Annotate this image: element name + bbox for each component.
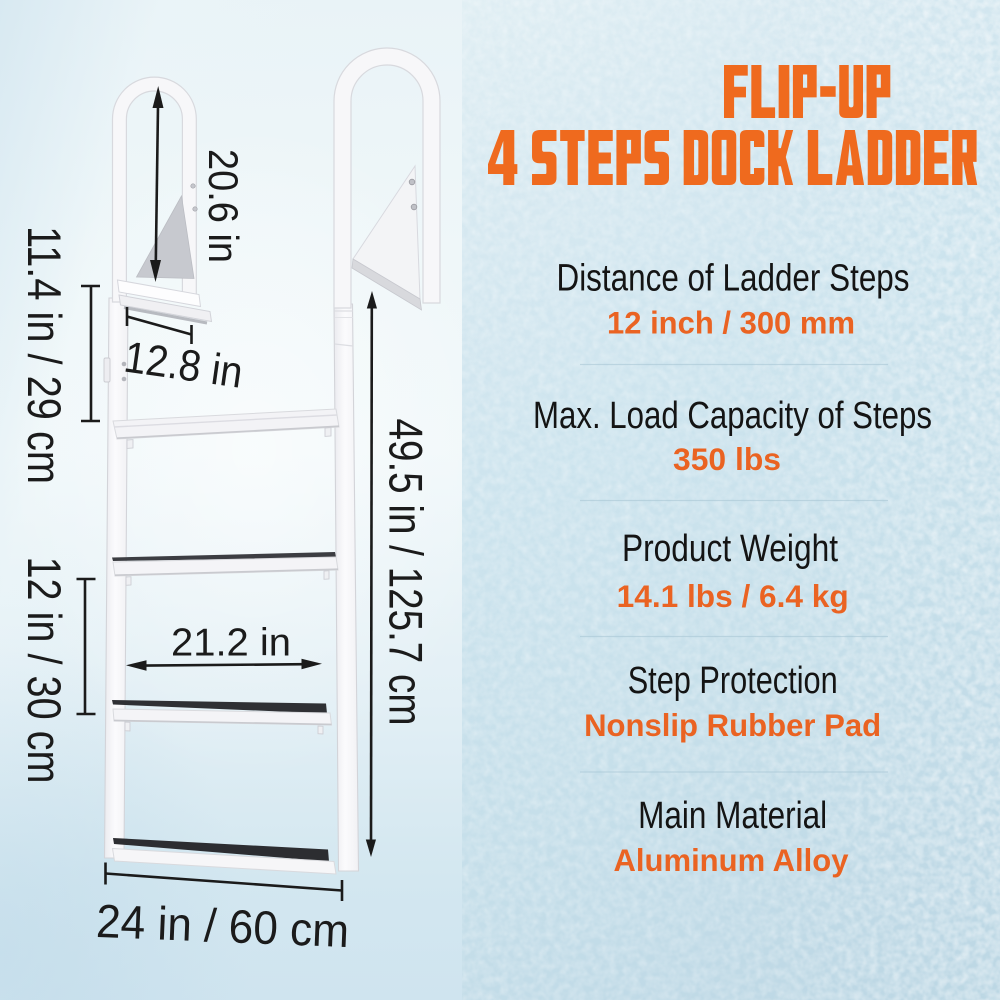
svg-text:Nonslip Rubber Pad: Nonslip Rubber Pad [584, 707, 881, 743]
svg-text:12 inch / 300 mm: 12 inch / 300 mm [607, 304, 855, 340]
svg-text:Main Material: Main Material [638, 795, 827, 837]
svg-text:Distance of Ladder Steps: Distance of Ladder Steps [557, 258, 910, 300]
svg-text:Max. Load Capacity of Steps: Max. Load Capacity of Steps [533, 395, 932, 437]
svg-text:49.5 in / 125.7 cm: 49.5 in / 125.7 cm [380, 419, 433, 726]
svg-text:12 in / 30 cm: 12 in / 30 cm [18, 557, 71, 784]
svg-text:24 in / 60 cm: 24 in / 60 cm [95, 894, 350, 957]
svg-text:Product Weight: Product Weight [622, 528, 838, 570]
svg-text:11.4 in / 29 cm: 11.4 in / 29 cm [18, 226, 71, 484]
svg-text:350 lbs: 350 lbs [673, 441, 781, 477]
svg-text:21.2 in: 21.2 in [171, 622, 291, 665]
svg-text:Aluminum Alloy: Aluminum Alloy [614, 842, 849, 878]
svg-text:20.6 in: 20.6 in [200, 149, 247, 263]
svg-text:12.8 in: 12.8 in [121, 333, 246, 398]
svg-text:Step Protection: Step Protection [628, 660, 838, 702]
svg-text:14.1 lbs / 6.4 kg: 14.1 lbs / 6.4 kg [617, 578, 849, 614]
